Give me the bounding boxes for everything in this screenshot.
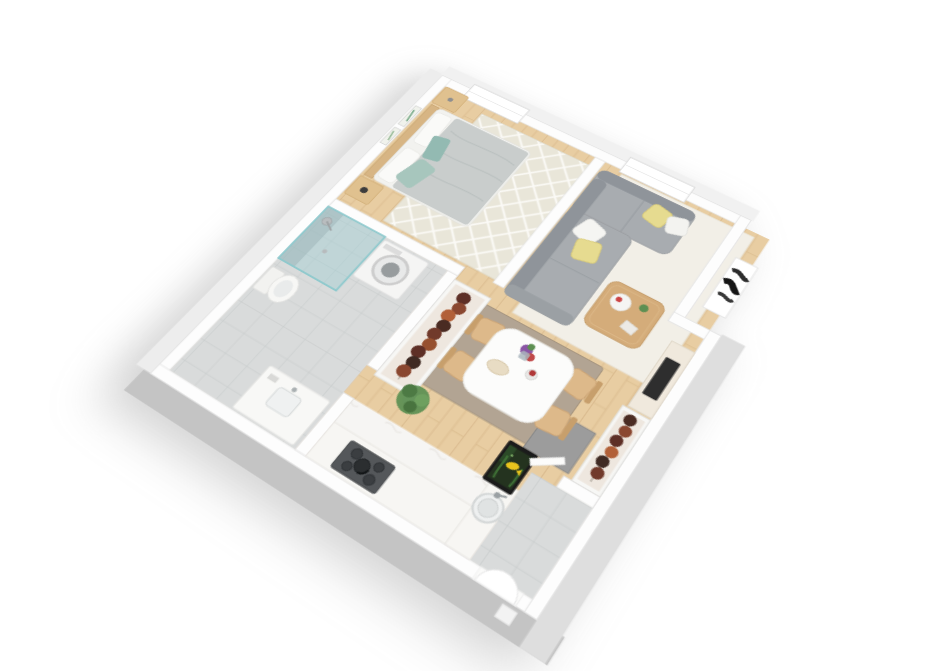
render-root [116, 60, 817, 665]
floor-plan-svg [96, 54, 917, 671]
floor-plan-scene [0, 0, 950, 671]
floor-plan-3d-container [96, 54, 917, 671]
